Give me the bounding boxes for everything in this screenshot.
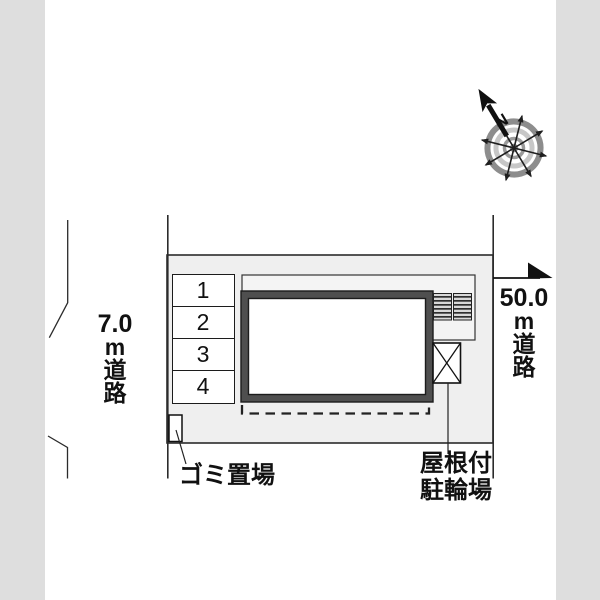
road-left-width: 7.0 [85, 313, 145, 336]
parking-stall-1: 1 [173, 275, 234, 306]
building-interior [249, 299, 426, 395]
parking-stall-2: 2 [173, 306, 234, 338]
road-label-left: 7.0 m 道 路 [85, 313, 145, 405]
compass-spokes [469, 103, 560, 194]
parking-stall-4: 4 [173, 370, 234, 402]
road-right-width: 50.0 [494, 287, 554, 310]
road-edge-upper-left [49, 220, 67, 338]
road-left-kanji-2: 路 [85, 382, 145, 405]
road-right-kanji-1: 道 [494, 333, 554, 356]
trash-box [169, 415, 182, 442]
bike-shed-label-line1: 屋根付 [420, 450, 492, 477]
trash-area-label: ゴミ置場 [179, 463, 275, 489]
bike-shed-label-line2: 駐輪場 [420, 477, 492, 504]
bike-shed-structure [433, 343, 461, 383]
road-label-right: 50.0 m 道 路 [494, 287, 554, 379]
parking-stall-3: 3 [173, 338, 234, 370]
compass-rose: N [450, 72, 559, 193]
parking-stall-column: 1 2 3 4 [172, 274, 235, 404]
bike-rack-2 [454, 294, 472, 321]
road-right-unit: m [494, 310, 554, 333]
bike-rack-1 [434, 294, 452, 321]
site-plan-canvas: N 1 2 3 4 7.0 m 道 路 50.0 m 道 路 ゴミ置場 屋根付 … [0, 0, 600, 600]
bike-shed-label: 屋根付 駐輪場 [420, 450, 492, 504]
road-direction-arrow [493, 263, 553, 279]
road-left-kanji-1: 道 [85, 359, 145, 382]
road-edge-lower-left [48, 436, 68, 479]
road-right-kanji-2: 路 [494, 356, 554, 379]
road-left-unit: m [85, 336, 145, 359]
